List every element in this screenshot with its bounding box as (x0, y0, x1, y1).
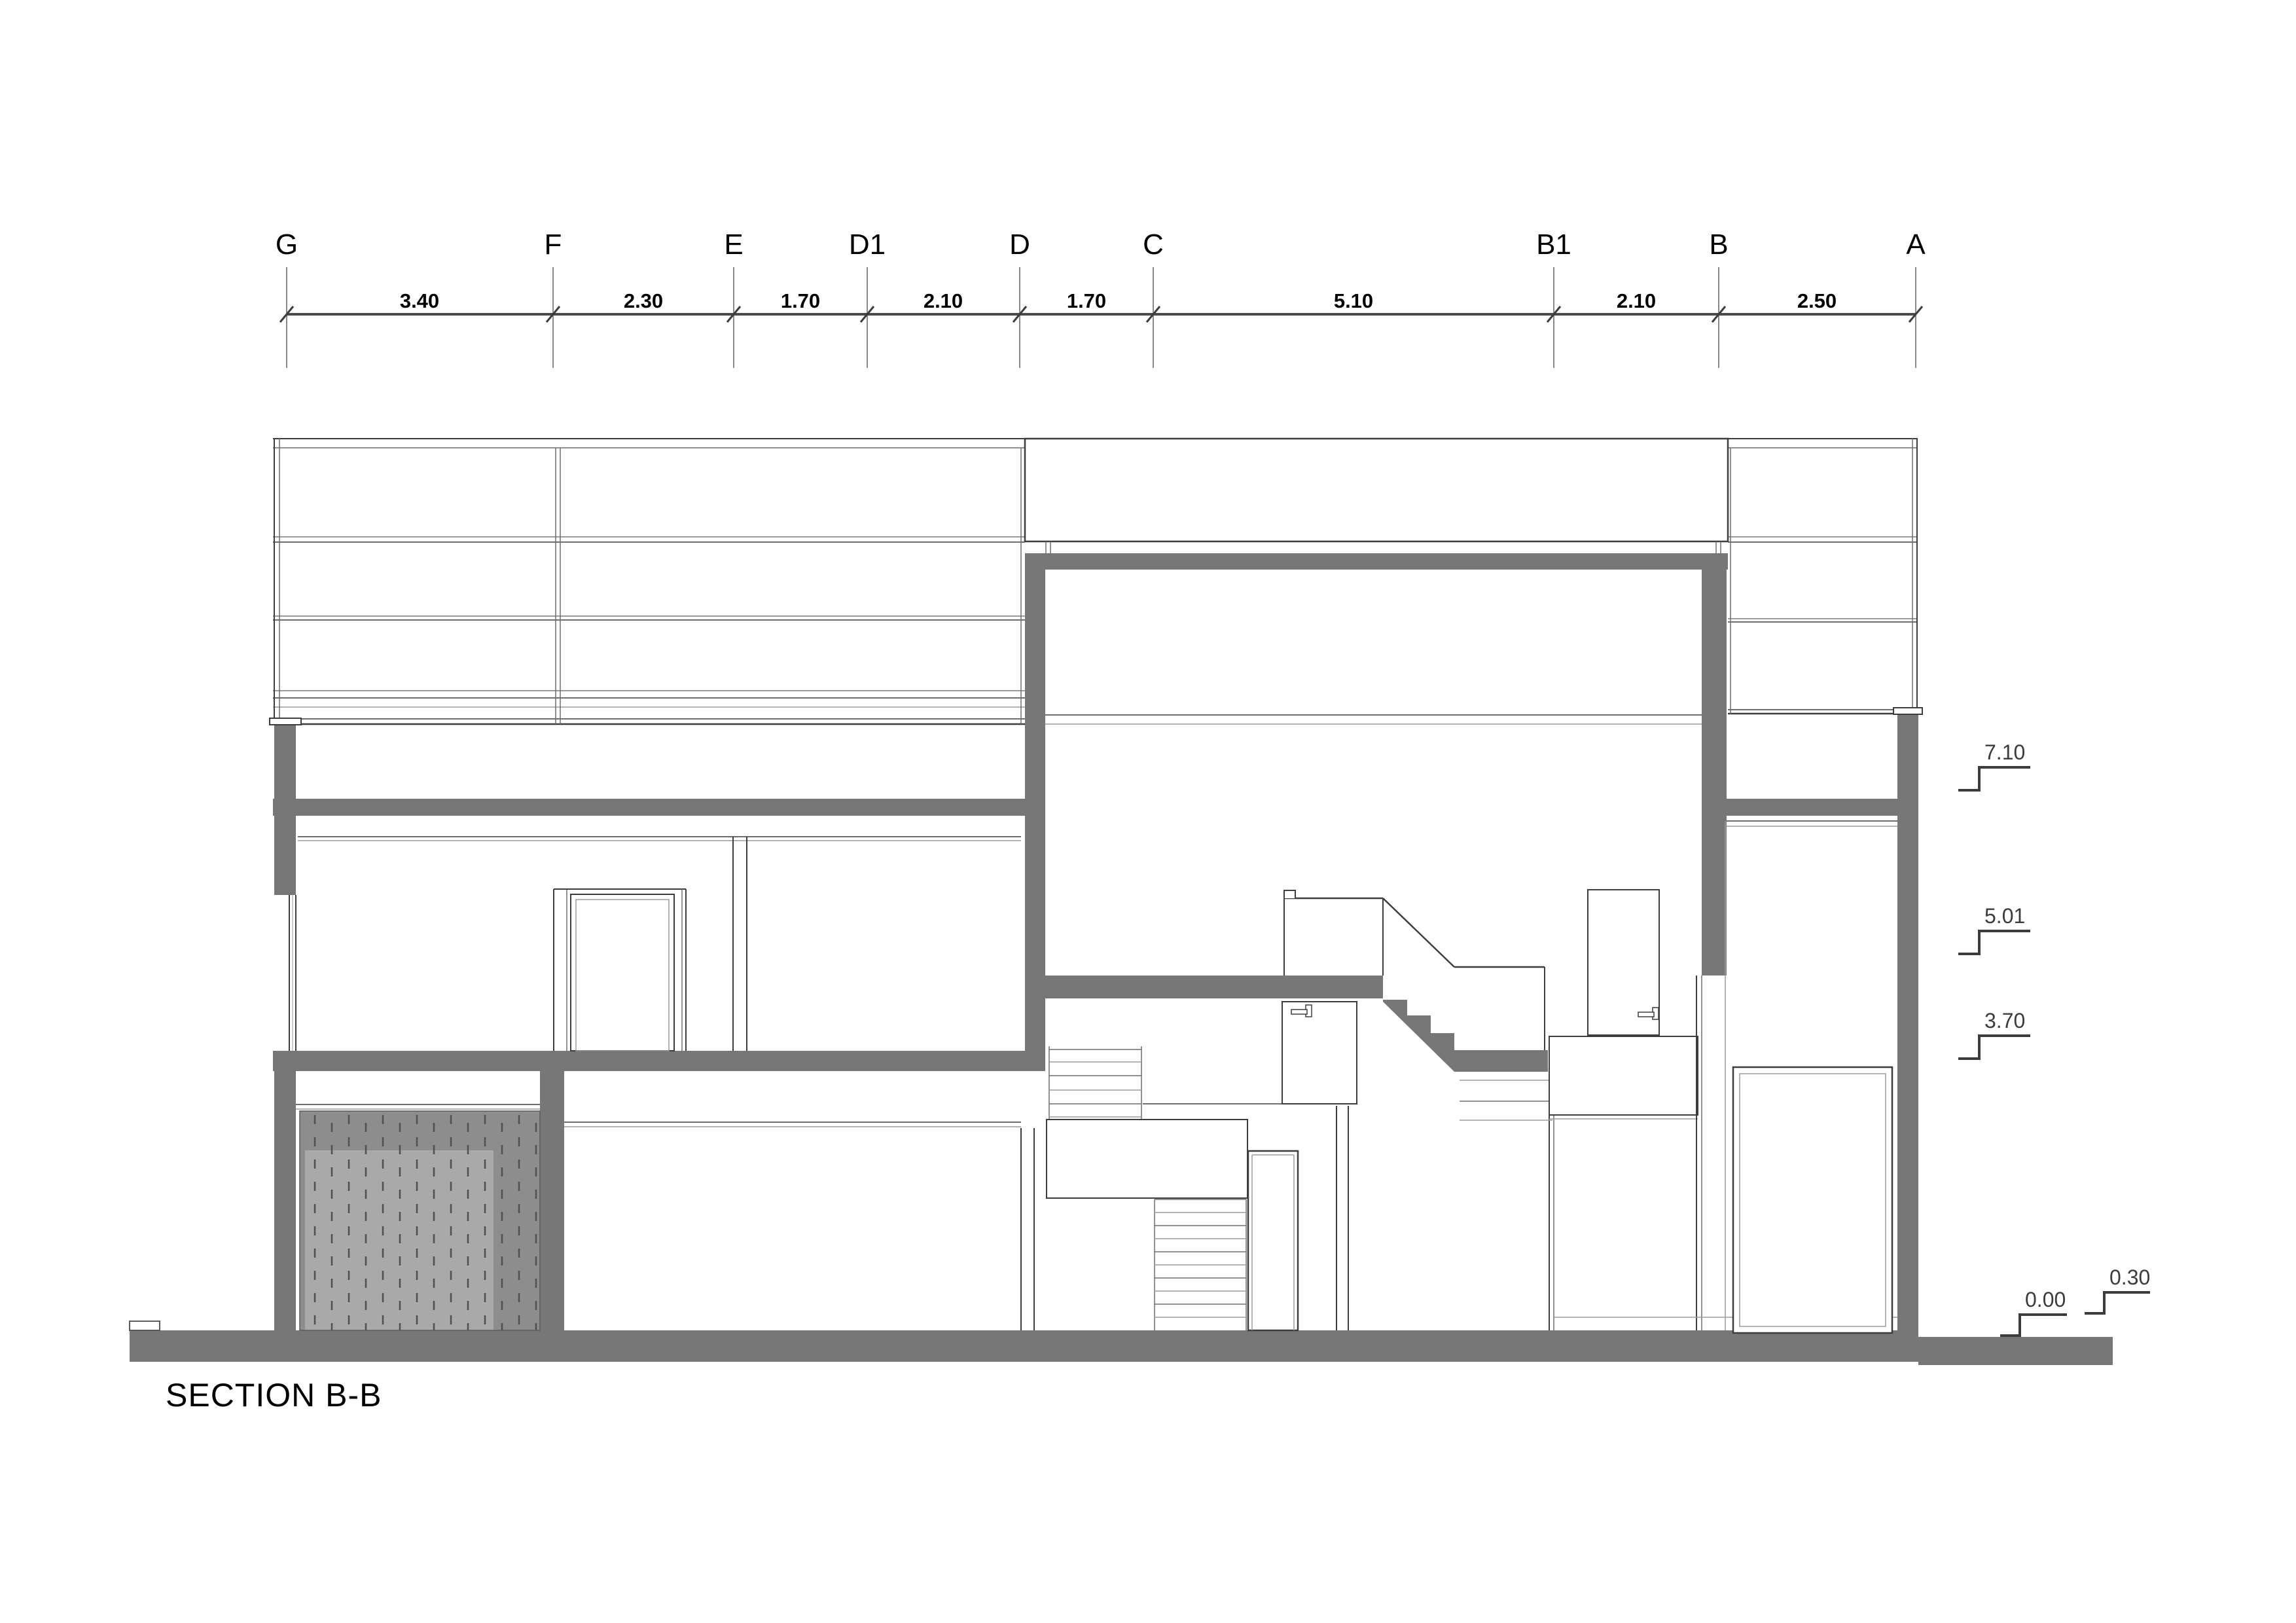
garage (274, 1071, 1021, 1330)
mezzanine-stair (1045, 890, 1698, 1120)
section-title: SECTION B-B (166, 1377, 382, 1413)
grid-label-f: F (545, 230, 562, 259)
elevation-ground: 0.00 (2025, 1288, 2066, 1311)
dimension-b-a: 2.50 (1797, 291, 1837, 311)
grid-label-b1: B1 (1536, 230, 1571, 259)
dimension-f-e: 2.30 (624, 291, 663, 311)
elevation-roof: 7.10 (1984, 741, 2025, 763)
dimension-d-c: 1.70 (1067, 291, 1106, 311)
dimension-c-b1: 5.10 (1334, 291, 1373, 311)
elevation-terrace: 0.30 (2109, 1266, 2150, 1288)
grid-label-a: A (1906, 230, 1925, 259)
dimension-g-f: 3.40 (400, 291, 439, 311)
grid-label-d: D (1009, 230, 1030, 259)
elevation-markers (1958, 767, 2150, 1336)
grid-lines (287, 267, 1916, 368)
elevation-mezzanine: 5.01 (1984, 905, 2025, 927)
grid-label-b: B (1709, 230, 1728, 259)
grid-label-d1: D1 (849, 230, 886, 259)
elevation-upper-floor: 3.70 (1984, 1010, 2025, 1032)
pergola-right-screen (1728, 439, 1918, 714)
dimension-b1-b: 2.10 (1617, 291, 1656, 311)
pergola-left-screen (273, 439, 1025, 724)
dimension-e-d1: 1.70 (781, 291, 820, 311)
grid-label-g: G (276, 230, 298, 259)
left-wing-upper-floor (273, 816, 1045, 1071)
grid-label-e: E (724, 230, 743, 259)
dimension-d1-d: 2.10 (924, 291, 963, 311)
grid-label-c: C (1143, 230, 1164, 259)
drawing-sheet: G F E D1 D C B1 B A 3.40 2.30 1.70 2.10 … (0, 0, 2296, 1623)
